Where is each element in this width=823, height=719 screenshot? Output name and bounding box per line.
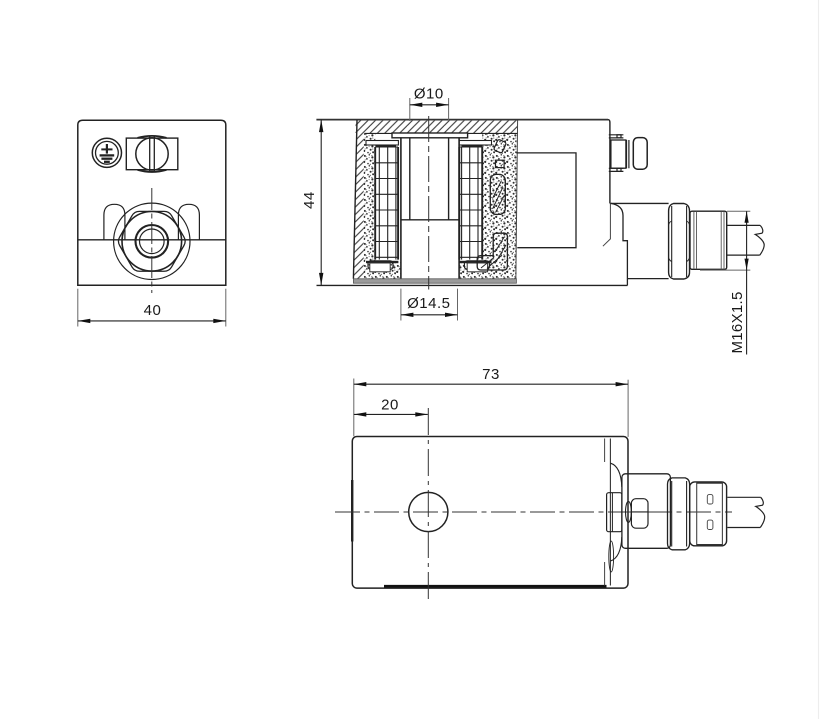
svg-text:44: 44 <box>301 191 318 209</box>
svg-text:40: 40 <box>144 302 162 319</box>
svg-text:73: 73 <box>482 366 500 383</box>
svg-text:M16X1.5: M16X1.5 <box>729 291 746 353</box>
svg-text:Ø14.5: Ø14.5 <box>407 295 450 312</box>
svg-text:Ø10: Ø10 <box>414 86 444 103</box>
svg-text:20: 20 <box>381 397 399 414</box>
